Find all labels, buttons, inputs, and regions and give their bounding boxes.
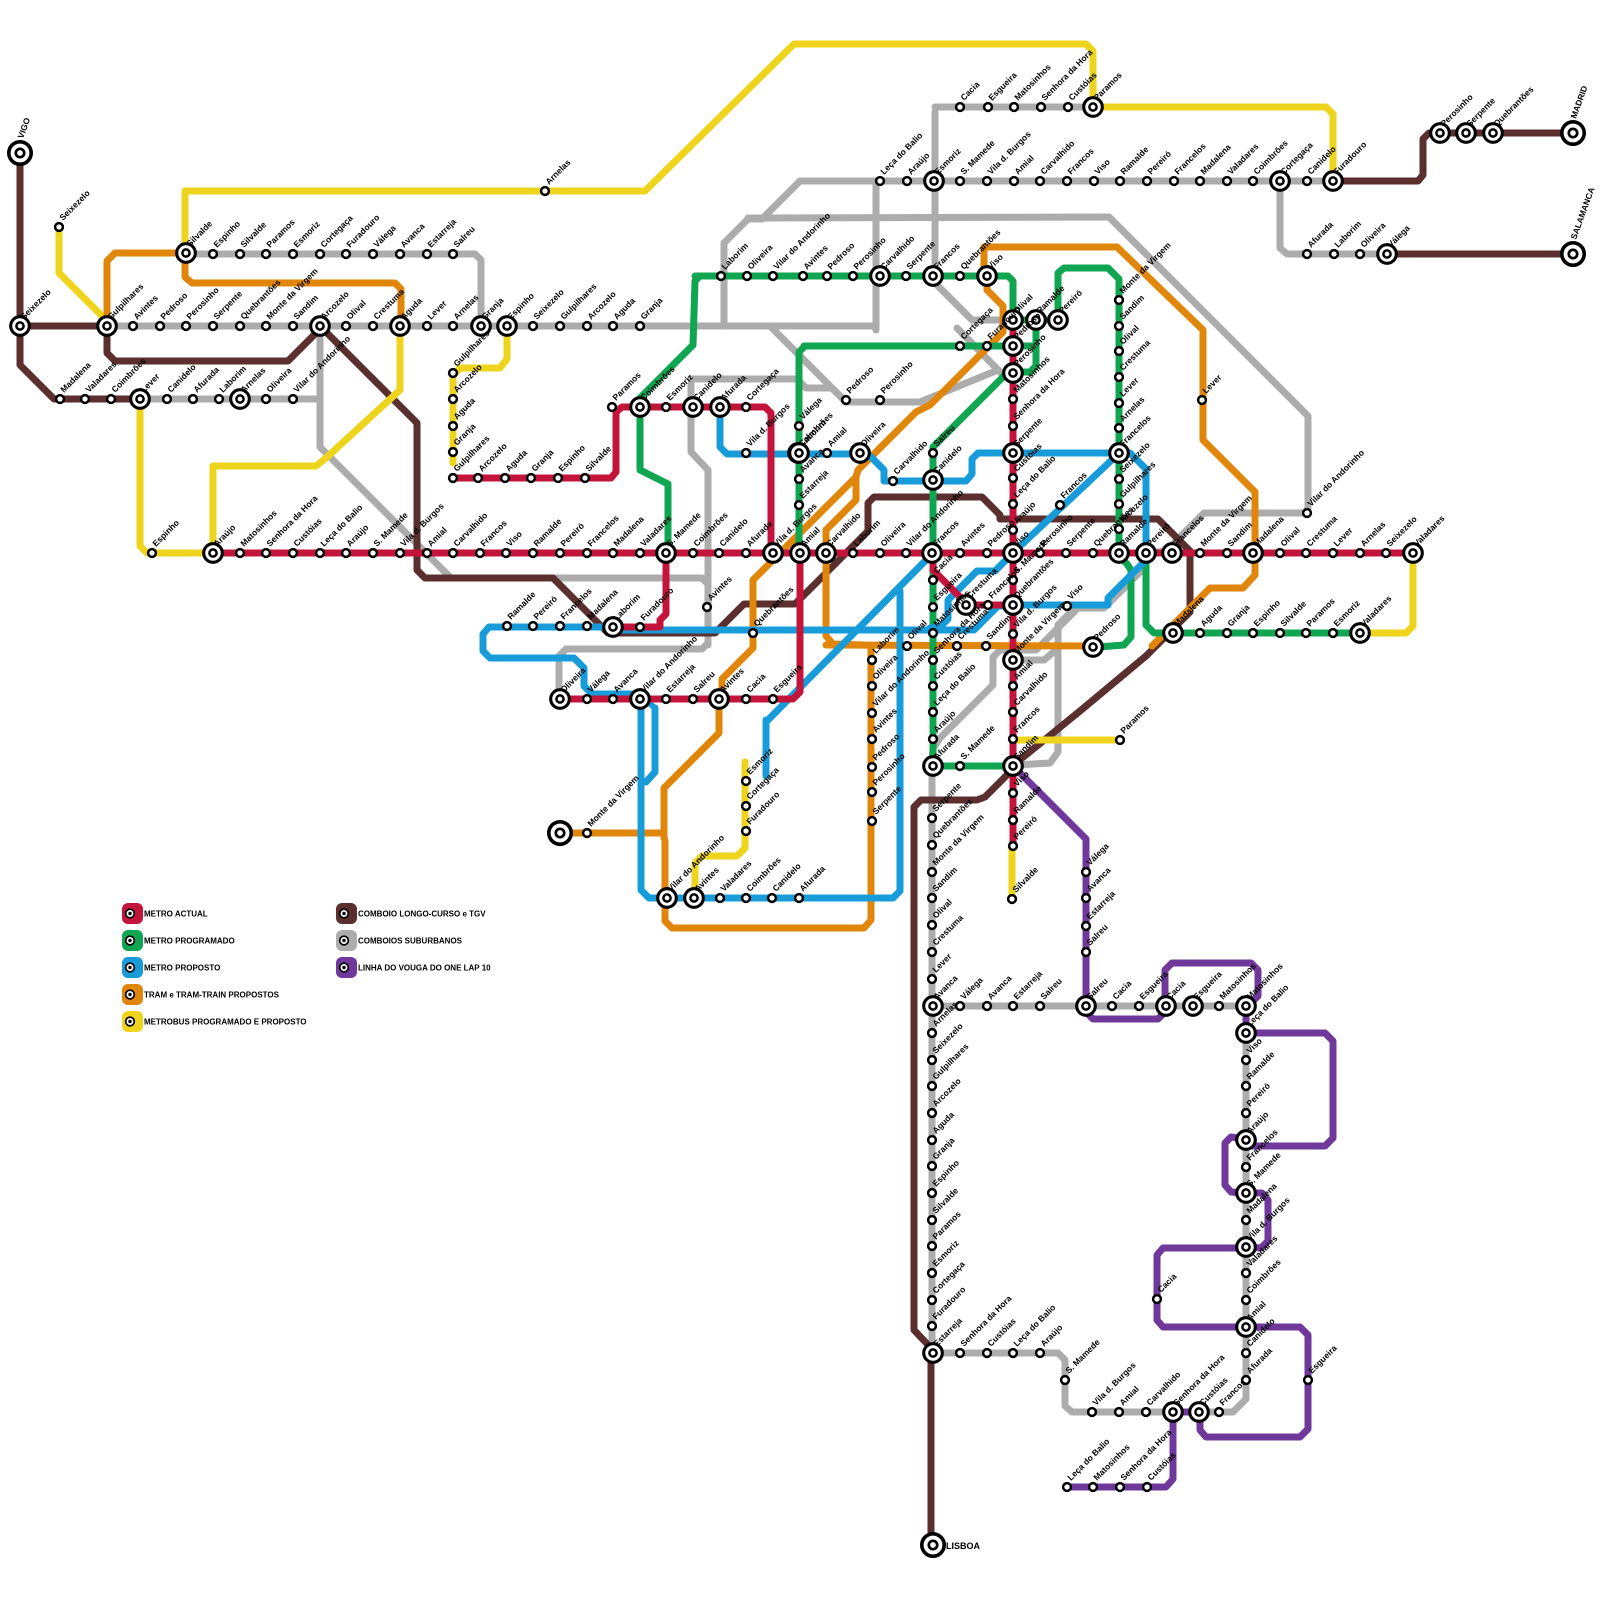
svg-text:LINHA DO VOUGA DO ONE LAP 10: LINHA DO VOUGA DO ONE LAP 10 bbox=[358, 964, 491, 973]
svg-text:METROBUS PROGRAMADO E PROPOSTO: METROBUS PROGRAMADO E PROPOSTO bbox=[144, 1018, 307, 1027]
svg-text:COMBOIO LONGO-CURSO e TGV: COMBOIO LONGO-CURSO e TGV bbox=[358, 910, 486, 919]
svg-text:COMBOIOS SUBURBANOS: COMBOIOS SUBURBANOS bbox=[358, 937, 463, 946]
svg-text:TRAM e TRAM-TRAIN PROPOSTOS: TRAM e TRAM-TRAIN PROPOSTOS bbox=[144, 991, 280, 1000]
svg-text:METRO PROPOSTO: METRO PROPOSTO bbox=[144, 964, 220, 973]
svg-text:METRO PROGRAMADO: METRO PROGRAMADO bbox=[144, 937, 235, 946]
svg-text:METRO ACTUAL: METRO ACTUAL bbox=[144, 910, 208, 919]
svg-text:LISBOA: LISBOA bbox=[946, 1541, 981, 1551]
